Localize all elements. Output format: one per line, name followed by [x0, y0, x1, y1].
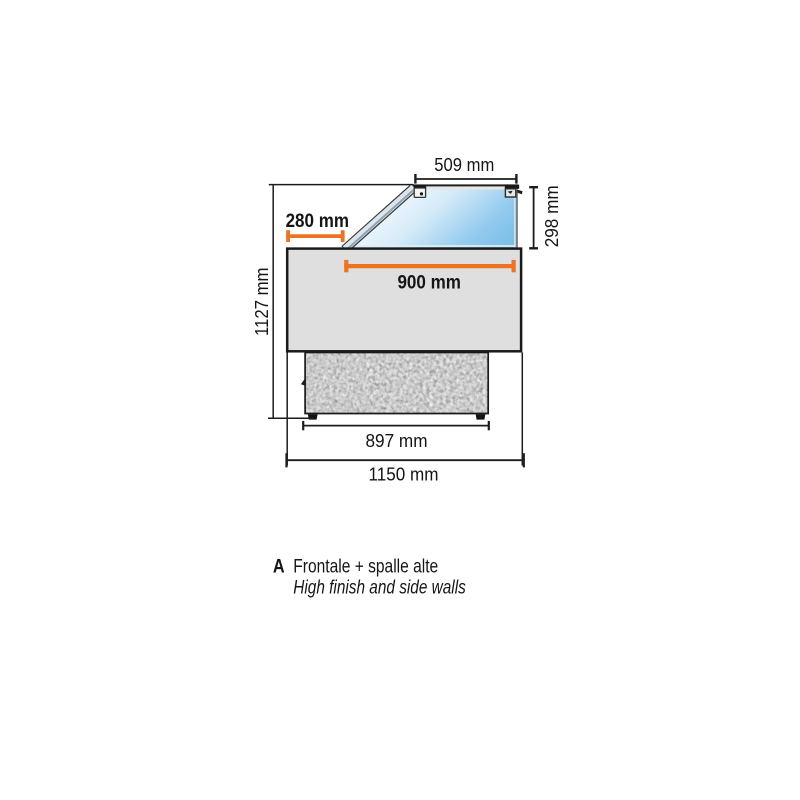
svg-text:298 mm: 298 mm — [542, 185, 562, 247]
svg-text:Frontale + spalle alte: Frontale + spalle alte — [293, 557, 438, 578]
svg-text:900 mm: 900 mm — [397, 272, 461, 293]
svg-text:A: A — [273, 557, 285, 578]
svg-text:1150 mm: 1150 mm — [369, 464, 439, 484]
svg-text:1127 mm: 1127 mm — [252, 268, 272, 337]
svg-text:897 mm: 897 mm — [366, 431, 428, 451]
svg-text:280 mm: 280 mm — [286, 211, 349, 232]
svg-text:High finish and side walls: High finish and side walls — [293, 578, 466, 599]
svg-text:509 mm: 509 mm — [434, 155, 494, 175]
